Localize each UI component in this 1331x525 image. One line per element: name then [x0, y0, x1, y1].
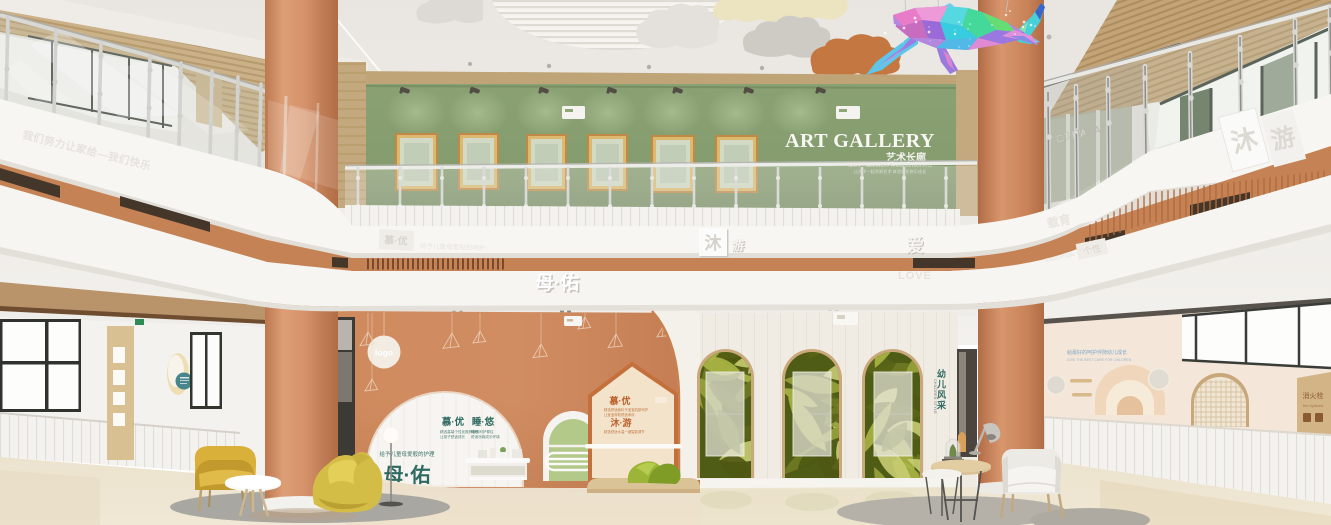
svg-text:幼儿风采: 幼儿风采 [936, 368, 947, 411]
svg-text:慕·优: 慕·优 [609, 395, 631, 406]
svg-text:消火栓: 消火栓 [1303, 391, 1324, 400]
svg-text:母·佑: 母·佑 [535, 271, 579, 294]
svg-text:游: 游 [731, 238, 744, 253]
svg-text:让孩子舒适成长: 让孩子舒适成长 [440, 434, 466, 439]
svg-text:fire hydrant: fire hydrant [1303, 403, 1324, 408]
svg-text:睡眠 呵护脊柱: 睡眠 呵护脊柱 [471, 429, 494, 434]
svg-text:精选舒适面料予宝宝肌肤呵护: 精选舒适面料予宝宝肌肤呵护 [604, 407, 649, 412]
svg-text:舒适凉爽成长环境: 舒适凉爽成长环境 [471, 434, 500, 439]
svg-text:让宝宝穿着舒适承欢: 让宝宝穿着舒适承欢 [604, 412, 635, 417]
svg-text:ART GALLERY: ART GALLERY [785, 130, 935, 152]
svg-text:慕·优: 慕·优 [383, 233, 408, 247]
svg-text:精选舒适水温一键智能调节: 精选舒适水温一键智能调节 [604, 429, 645, 434]
svg-text:爱: 爱 [906, 236, 924, 256]
svg-text:睡·悠: 睡·悠 [472, 416, 495, 428]
svg-text:慕·优: 慕·优 [441, 416, 465, 428]
svg-text:LOVE: LOVE [898, 270, 932, 282]
svg-text:給最好的呵护伴随幼儿成长: 給最好的呵护伴随幼儿成长 [1067, 349, 1127, 356]
svg-text:沐: 沐 [705, 234, 723, 253]
svg-text:GIVE THE BEST CARE FOR CHILDRE: GIVE THE BEST CARE FOR CHILDREN [1067, 358, 1132, 362]
svg-text:logo: logo [375, 348, 393, 358]
svg-text:CHILDREN STYLE: CHILDREN STYLE [933, 379, 937, 414]
svg-text:给予儿童母爱般的护理: 给予儿童母爱般的护理 [379, 450, 435, 458]
svg-text:沐·游: 沐·游 [611, 417, 632, 428]
